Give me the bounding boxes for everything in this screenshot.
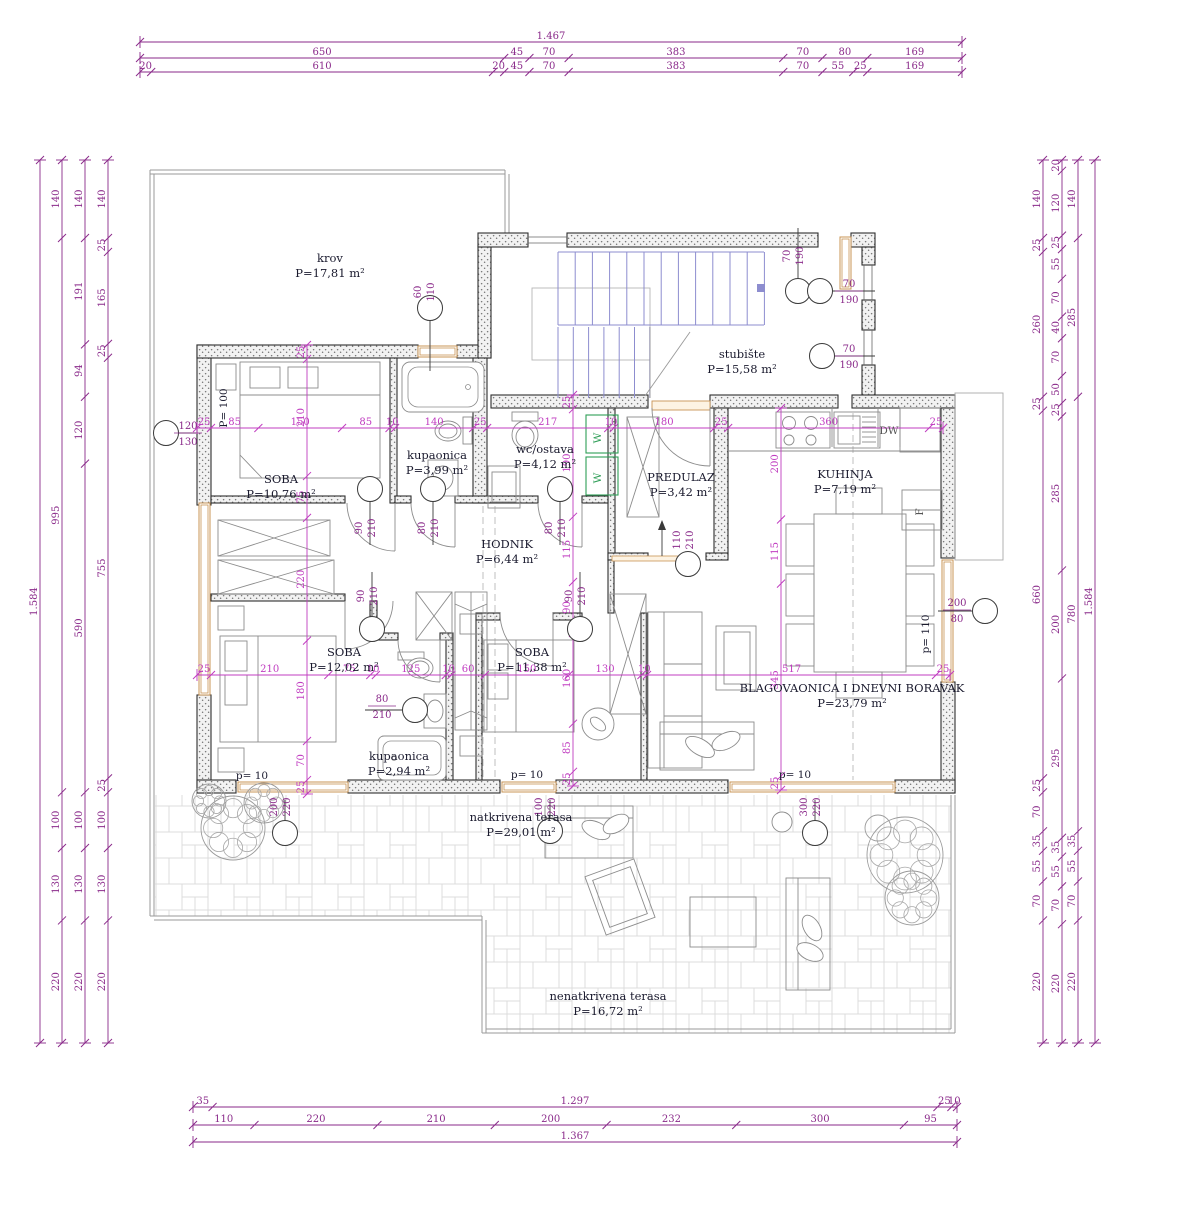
dim-value: 115 xyxy=(770,542,781,561)
dim-chain-left-total: 1.584 xyxy=(29,156,46,1047)
dim-value: 200 xyxy=(770,454,781,473)
dim-value: 35 xyxy=(1067,835,1078,848)
dim-value: 780 xyxy=(1067,604,1078,623)
dim-value: 650 xyxy=(313,47,332,58)
appliance-label: F xyxy=(914,508,926,515)
dim-value: 10 xyxy=(605,417,618,428)
dim-value: 232 xyxy=(662,1114,681,1125)
dim-value: 80 xyxy=(839,47,852,58)
dim-chain-top-total: 1.467 xyxy=(136,31,966,48)
dim-value: 140 xyxy=(1032,189,1043,208)
dim-value: 70 xyxy=(1051,351,1062,364)
dim-value: 55 xyxy=(1067,860,1078,873)
marker-value: 210 xyxy=(367,518,378,537)
dim-chain-right-total: 1.584 xyxy=(1084,156,1101,1047)
annotation: p= 10 xyxy=(779,769,811,781)
dim-value: 220 xyxy=(1067,972,1078,991)
dim-value: 210 xyxy=(427,1114,446,1125)
marker-value: 200 xyxy=(269,797,280,816)
annotation: p= 110 xyxy=(920,615,932,654)
dim-value: 130 xyxy=(596,664,615,675)
room-area: P=3,42 m² xyxy=(650,485,712,499)
dim-value: 25 xyxy=(296,346,307,359)
marker-value: 190 xyxy=(839,295,858,306)
dim-value: 220 xyxy=(306,1114,325,1125)
dim-value: 35 xyxy=(1032,835,1043,848)
dim-value: 995 xyxy=(51,506,62,525)
marker-value: 200 xyxy=(947,598,966,609)
room-label: PREDULAZP=3,42 m² xyxy=(647,470,715,499)
room-label: SOBAP=12,02 m² xyxy=(309,645,378,674)
dim-value: 217 xyxy=(538,417,557,428)
room-name: stubište xyxy=(719,347,765,361)
dim-value: 55 xyxy=(832,61,845,72)
marker-door-kupaonica: 80210 xyxy=(417,477,446,546)
dim-value: 130 xyxy=(97,875,108,894)
dim-chain-left-3: 14019194120590100130220 xyxy=(74,156,91,1047)
marker-value: 70 xyxy=(782,250,793,263)
dim-value: 1.584 xyxy=(1084,587,1095,616)
dim-value: 115 xyxy=(562,540,573,559)
room-area: P=10,76 m² xyxy=(246,487,315,501)
room-name: BLAGOVAONICA I DNEVNI BORAVAK xyxy=(740,681,965,695)
dim-value: 25 xyxy=(97,239,108,252)
dim-value: 285 xyxy=(1067,308,1078,327)
annotation: p= 10 xyxy=(511,769,543,781)
dim-value: 210 xyxy=(260,664,279,675)
dim-value: 25 xyxy=(1032,239,1043,252)
dim-value: 25 xyxy=(474,417,487,428)
dim-value: 169 xyxy=(905,61,924,72)
dim-chain-left-2: 140995100130220 xyxy=(51,156,68,1047)
dim-value: 70 xyxy=(1051,899,1062,912)
dim-value: 95 xyxy=(924,1114,937,1125)
annotation: p= 10 xyxy=(236,770,268,782)
marker-door-wc: 80210 xyxy=(544,477,573,546)
marker-value: 90 xyxy=(354,522,365,535)
marker-value: 80 xyxy=(417,522,428,535)
dim-value: 191 xyxy=(74,282,85,301)
marker-value: 220 xyxy=(812,797,823,816)
room-label: KUHINJAP=7,19 m² xyxy=(814,467,876,496)
marker-value: 210 xyxy=(369,586,380,605)
room-name: kupaonica xyxy=(407,448,467,462)
dim-value: 85 xyxy=(228,417,241,428)
dim-value: 140 xyxy=(74,189,85,208)
room-name: HODNIK xyxy=(481,537,533,551)
dim-value: 125 xyxy=(401,664,420,675)
marker-value: 210 xyxy=(685,530,696,549)
dim-value: 25 xyxy=(198,417,211,428)
room-name: wc/ostava xyxy=(516,442,574,456)
marker-value: 220 xyxy=(282,797,293,816)
marker-value: 110 xyxy=(426,282,437,301)
room-area: P=16,72 m² xyxy=(573,1004,642,1018)
dim-value: 25 xyxy=(562,773,573,786)
dim-value: 180 xyxy=(296,681,307,700)
dim-value: 140 xyxy=(51,189,62,208)
dim-value: 285 xyxy=(1051,484,1062,503)
room-name: SOBA xyxy=(327,645,362,659)
room-name: PREDULAZ xyxy=(647,470,715,484)
dim-value: 200 xyxy=(541,1114,560,1125)
dim-value: 360 xyxy=(819,417,838,428)
appliance-label: DW xyxy=(879,425,898,437)
dim-value: 10 xyxy=(638,664,651,675)
dim-value: 210 xyxy=(296,408,307,427)
dim-value: 120 xyxy=(74,421,85,440)
marker-value: 80 xyxy=(544,522,555,535)
dim-value: 383 xyxy=(666,47,685,58)
dim-value: 60 xyxy=(462,664,475,675)
dim-value: 40 xyxy=(1051,321,1062,334)
room-area: P=3,99 m² xyxy=(406,463,468,477)
dim-value: 220 xyxy=(296,570,307,589)
room-area: P=6,44 m² xyxy=(476,552,538,566)
dim-chain-bottom-2: 11022021020023230095 xyxy=(189,1114,961,1131)
dim-value: 300 xyxy=(811,1114,830,1125)
marker-left-window: 120130 xyxy=(154,421,203,449)
dim-value: 25 xyxy=(930,417,943,428)
dim-value: 295 xyxy=(1051,749,1062,768)
room-name: SOBA xyxy=(515,645,550,659)
dim-value: 45 xyxy=(510,47,523,58)
marker-value: 80 xyxy=(376,694,389,705)
dim-value: 383 xyxy=(666,61,685,72)
room-label: SOBAP=10,76 m² xyxy=(246,472,315,501)
dim-value: 169 xyxy=(905,47,924,58)
room-area: P=15,58 m² xyxy=(707,362,776,376)
floor-plan-canvas: 1.46765045703837080169206102045703837055… xyxy=(0,0,1200,1207)
dim-value: 25 xyxy=(198,664,211,675)
dim-chain-top-3: 20610204570383705525169 xyxy=(136,61,966,78)
marker-value: 110 xyxy=(672,530,683,549)
dim-value: 590 xyxy=(74,618,85,637)
dim-value: 260 xyxy=(1032,315,1043,334)
marker-value: 90 xyxy=(356,590,367,603)
marker-value: 130 xyxy=(178,437,197,448)
marker-door-kup2: 80210 xyxy=(365,694,428,723)
dim-value: 130 xyxy=(74,875,85,894)
annotation: P= 100 xyxy=(218,388,230,427)
dim-value: 55 xyxy=(1032,860,1043,873)
dim-value: 70 xyxy=(1032,895,1043,908)
dim-value: 25 xyxy=(562,396,573,409)
dim-value: 517 xyxy=(782,664,801,675)
room-area: P=17,81 m² xyxy=(295,266,364,280)
dim-value: 70 xyxy=(796,47,809,58)
room-label: BLAGOVAONICA I DNEVNI BORAVAKP=23,79 m² xyxy=(740,681,965,710)
dim-value: 1.467 xyxy=(537,31,566,42)
dim-value: 94 xyxy=(74,364,85,377)
room-name: krov xyxy=(317,251,343,265)
dim-value: 25 xyxy=(97,779,108,792)
dim-value: 25 xyxy=(854,61,867,72)
dim-value: 70 xyxy=(796,61,809,72)
annotations: p= 10p= 10p= 10P= 100p= 110DWFWW xyxy=(218,388,932,782)
room-area: P=2,94 m² xyxy=(368,764,430,778)
dim-value: 180 xyxy=(654,417,673,428)
dim-value: 70 xyxy=(296,754,307,767)
dim-value: 25 xyxy=(1051,403,1062,416)
marker-value: 190 xyxy=(795,246,806,265)
dim-value: 20 xyxy=(139,61,152,72)
room-label: stubišteP=15,58 m² xyxy=(707,347,776,376)
marker-value: 80 xyxy=(951,614,964,625)
dim-value: 100 xyxy=(97,811,108,830)
room-area: P=23,79 m² xyxy=(817,696,886,710)
marker-value: 70 xyxy=(843,344,856,355)
dim-value: 100 xyxy=(74,811,85,830)
dim-value: 10 xyxy=(442,664,455,675)
room-area: P=12,02 m² xyxy=(309,660,378,674)
dim-value: 35 xyxy=(196,1096,209,1107)
dim-value: 25 xyxy=(1051,236,1062,249)
dim-value: 220 xyxy=(1032,972,1043,991)
dim-value: 220 xyxy=(51,972,62,991)
room-area: P=7,19 m² xyxy=(814,482,876,496)
dim-chain-bottom-total: 1.367 xyxy=(189,1131,961,1148)
marker-value: 210 xyxy=(430,518,441,537)
dim-value: 25 xyxy=(97,344,108,357)
marker-value: 70 xyxy=(843,279,856,290)
dim-value: 220 xyxy=(74,972,85,991)
dim-chain-right-2: 2012025557040705025285200295355570220 xyxy=(1051,156,1068,1047)
dim-value: 70 xyxy=(543,61,556,72)
dim-chain-right-1: 14025260256602570355570220 xyxy=(1032,156,1049,1047)
dim-value: 755 xyxy=(97,559,108,578)
appliance-label: W xyxy=(592,472,604,483)
dim-value: 25 xyxy=(296,781,307,794)
marker-value: 210 xyxy=(557,518,568,537)
dim-value: 85 xyxy=(562,741,573,754)
dim-value: 45 xyxy=(510,61,523,72)
appliance-label: W xyxy=(592,432,604,443)
dim-value: 50 xyxy=(1051,383,1062,396)
marker-entrance: 110210 xyxy=(658,520,701,577)
dim-value: 25 xyxy=(1032,779,1043,792)
room-name: kupaonica xyxy=(369,749,429,763)
dim-value: 20 xyxy=(1051,159,1062,172)
dim-value: 70 xyxy=(1032,805,1043,818)
dim-value: 70 xyxy=(1067,895,1078,908)
room-area: P=4,12 m² xyxy=(514,457,576,471)
dim-chain-left-4: 140251652575525100130220 xyxy=(97,156,114,1047)
dim-value: 120 xyxy=(1051,194,1062,213)
dim-value: 610 xyxy=(313,61,332,72)
dim-value: 220 xyxy=(97,972,108,991)
dim-value: 140 xyxy=(1067,189,1078,208)
dim-value: 55 xyxy=(1051,258,1062,271)
dim-chain-int-v1: 25210752201807025 xyxy=(296,341,313,798)
dim-chain-int-v3: 20011534525 xyxy=(770,404,787,794)
dim-value: 165 xyxy=(97,288,108,307)
dim-value: 1.367 xyxy=(561,1131,590,1142)
dim-value: 70 xyxy=(1051,291,1062,304)
dim-value: 20 xyxy=(492,61,505,72)
room-label: krovP=17,81 m² xyxy=(295,251,364,280)
dim-value: 110 xyxy=(214,1114,233,1125)
room-area: P=11,38 m² xyxy=(497,660,566,674)
dim-value: 660 xyxy=(1032,585,1043,604)
room-label: kupaonicaP=2,94 m² xyxy=(368,749,430,778)
dim-value: 35 xyxy=(1051,841,1062,854)
dim-value: 55 xyxy=(1051,865,1062,878)
dim-value: 1.297 xyxy=(561,1096,590,1107)
marker-value: 210 xyxy=(577,586,588,605)
dim-chain-bottom-1: 351.2972510 xyxy=(189,1096,961,1113)
room-label: wc/ostavaP=4,12 m² xyxy=(514,442,576,471)
dim-value: 25 xyxy=(1032,397,1043,410)
marker-value: 210 xyxy=(372,710,391,721)
dim-value: 140 xyxy=(425,417,444,428)
room-name: KUHINJA xyxy=(817,467,873,481)
marker-value: 90 xyxy=(564,590,575,603)
room-name: natkrivena terasa xyxy=(470,810,573,824)
room-label: HODNIKP=6,44 m² xyxy=(476,537,538,566)
marker-value: 300 xyxy=(799,797,810,816)
room-area: P=29,01 m² xyxy=(486,825,555,839)
marker-value: 120 xyxy=(178,421,197,432)
dim-value: 100 xyxy=(51,811,62,830)
room-label: kupaonicaP=3,99 m² xyxy=(406,448,468,477)
dim-value: 1.584 xyxy=(29,587,40,616)
dim-value: 10 xyxy=(948,1096,961,1107)
dim-value: 130 xyxy=(51,875,62,894)
stairs xyxy=(532,252,765,398)
dim-value: 85 xyxy=(359,417,372,428)
dim-value: 200 xyxy=(1051,615,1062,634)
floor-plan-page: 1.46765045703837080169206102045703837055… xyxy=(0,0,1200,1207)
dim-value: 25 xyxy=(715,417,728,428)
dim-chain-right-3: 140285780355570220 xyxy=(1067,156,1084,1047)
dim-value: 220 xyxy=(1051,974,1062,993)
room-name: nenatkrivena terasa xyxy=(550,989,667,1003)
room-name: SOBA xyxy=(264,472,299,486)
marker-door-soba1: 90210 xyxy=(354,477,383,546)
dim-value: 140 xyxy=(97,189,108,208)
dim-value: 70 xyxy=(543,47,556,58)
marker-value: 190 xyxy=(839,360,858,371)
marker-value: 60 xyxy=(413,286,424,299)
dim-value: 10 xyxy=(386,417,399,428)
dim-value: 25 xyxy=(937,664,950,675)
